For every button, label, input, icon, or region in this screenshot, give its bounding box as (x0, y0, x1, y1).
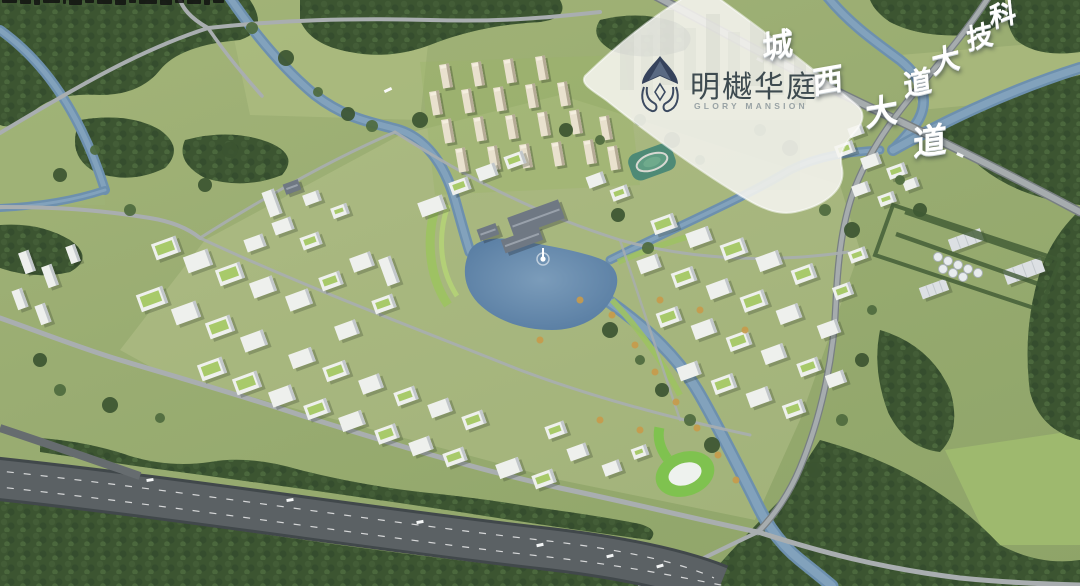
industrial-hedges (875, 205, 1060, 310)
watermark-fragments (2, 0, 224, 6)
watermark-fragment (34, 0, 40, 5)
watermark-fragment (160, 0, 172, 5)
watermark-fragment (85, 0, 94, 3)
watermark-fragment (115, 0, 126, 5)
watermark-fragment (2, 0, 17, 3)
watermark-fragment (175, 0, 184, 3)
project-subtitle: GLORY MANSION (694, 101, 808, 111)
project-title: 明樾华庭 (690, 62, 818, 106)
watermark-fragment (63, 0, 66, 4)
aerial-masterplan-rendering: 明樾华庭 GLORY MANSION 城西大道科技大道 (0, 0, 1080, 586)
watermark-fragment (187, 0, 201, 4)
road-label-char: 道 (902, 57, 933, 105)
watermark-fragment (20, 0, 31, 4)
road-label-char: 大 (864, 82, 898, 136)
watermark-fragment (97, 0, 112, 4)
watermark-fragment (204, 0, 210, 5)
road-label-char: 道 (913, 111, 947, 165)
watermark-fragment (213, 0, 224, 3)
watermark-fragment (129, 0, 136, 3)
road-label-char: 西 (811, 52, 843, 103)
watermark-fragment (43, 0, 60, 3)
road-label-char: 大 (929, 33, 962, 82)
road-label-char: 城 (761, 17, 793, 68)
watermark-fragment (139, 0, 157, 4)
watermark-fragment (69, 0, 82, 5)
road-label-char: 技 (964, 12, 994, 58)
